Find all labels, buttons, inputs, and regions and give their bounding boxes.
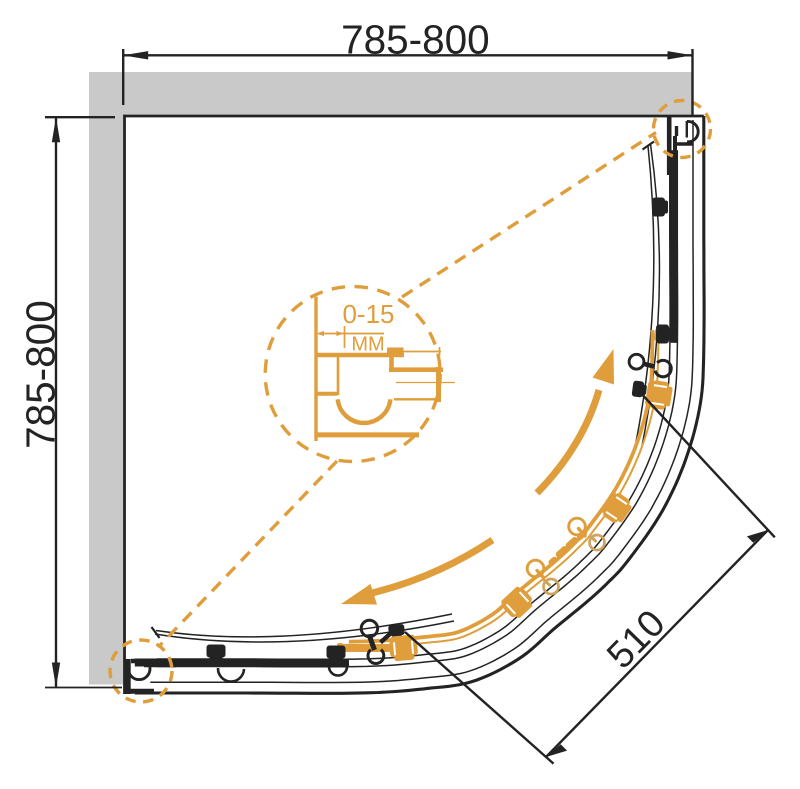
svg-text:MM: MM <box>351 334 384 356</box>
svg-text:0-15: 0-15 <box>342 299 394 329</box>
svg-text:785-800: 785-800 <box>341 17 490 63</box>
svg-text:510: 510 <box>599 602 673 677</box>
svg-text:785-800: 785-800 <box>17 300 63 449</box>
